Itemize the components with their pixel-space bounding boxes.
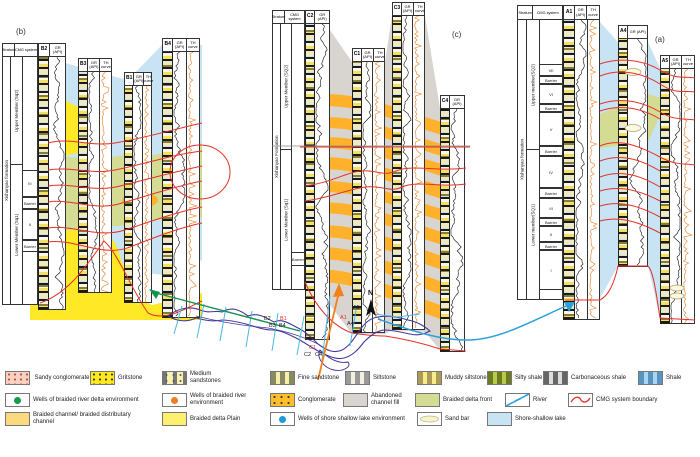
panel-c-tag: (c) <box>452 30 461 39</box>
legend-label: Braided delta front <box>443 397 492 404</box>
fine-sandstone-swatch <box>270 371 295 385</box>
well-A1-th-header: TH curve <box>587 6 599 19</box>
well-B3-gr-header: GR (API) <box>88 59 100 71</box>
well-B3-gr-curve <box>88 72 99 292</box>
legend-label: Abandoned channel fill <box>371 393 419 406</box>
panel-a-unit-VII: VII <box>539 64 563 76</box>
well-A1-gr-track <box>575 20 588 320</box>
legend-item-siltstone: Siltstone <box>345 371 396 385</box>
braided-delta-front-swatch <box>415 393 440 407</box>
map-label-C2: C2 <box>304 353 311 359</box>
panel-a-unit-barrier-4: Barrier <box>539 188 563 198</box>
well-B1-th-curve <box>143 86 151 302</box>
cmg-boundary-swatch <box>568 393 593 407</box>
well-A4-gr-curve <box>628 39 647 266</box>
well-C2-gr-curve <box>315 24 329 339</box>
well-B3-th-header: TH curve <box>100 59 111 71</box>
legend-item-wells-shore-shallow-lake: Wells of shore shallow lake environment <box>270 412 405 426</box>
well-B1-th-track <box>143 86 152 303</box>
map-label-B1: B1 <box>280 317 287 323</box>
well-B3-th-curve <box>100 72 111 292</box>
well-A5-th-track <box>682 69 695 324</box>
legend-label: Siltstone <box>373 375 396 382</box>
panel-a-unit-I: I <box>539 250 563 290</box>
panel-a-unit-III: III <box>539 198 563 218</box>
well-B4-th-curve <box>187 52 199 317</box>
legend-item-sandy-conglomerate: Sandy conglomerate <box>5 371 91 385</box>
well-C1-th-track <box>373 62 385 333</box>
panel-a-tag: (a) <box>655 35 665 44</box>
well-B3-gr-track <box>88 72 100 293</box>
map-label-A5: A5 <box>353 306 360 312</box>
panel-a-stratum-header: Stratum <box>518 6 533 19</box>
panel-c-stratum-header: Stratum <box>273 11 285 23</box>
well-A5-gr-curve <box>670 69 681 323</box>
legend-label: Muddy siltstone <box>445 375 487 382</box>
well-A5: A5 GR (API) TH curve <box>660 55 695 324</box>
legend-label: Wells of braided river environment <box>190 393 252 406</box>
panel-c-cmg-header: CMG system <box>285 11 304 23</box>
legend-item-fine-sandstone: Fine sandstone <box>270 371 344 385</box>
panel-b-formation-label: Xishanyao formation <box>3 57 10 304</box>
carbonaceous-shale-swatch <box>543 371 568 385</box>
legend-label: Conglomerate <box>298 397 336 404</box>
well-C3-gr-track <box>402 16 413 330</box>
legend-label: Fine sandstone <box>298 375 344 382</box>
muddy-siltstone-swatch <box>417 371 442 385</box>
legend-label: Wells of braided river delta environment <box>33 397 139 404</box>
well-C3-lithology-column <box>392 16 402 330</box>
panel-a-unit-V: V <box>539 112 563 146</box>
panel-b-tag: (b) <box>16 27 26 36</box>
legend-label: Medium sandstones <box>190 371 242 384</box>
map-label-C4: C4 <box>315 353 322 359</box>
siltstone-swatch <box>345 371 370 385</box>
well-C4-lithology-column <box>440 109 450 352</box>
panel-b-unit-barrier-1: Barrier <box>22 197 38 209</box>
map-label-C1: C1 <box>309 346 316 352</box>
map-label-B3: B3 <box>269 324 276 330</box>
legend-item-braided-channel: Braided channel/ braided distributary ch… <box>5 412 143 426</box>
panel-a-unit-IV: IV <box>539 156 563 188</box>
legend-item-river: River <box>505 393 547 407</box>
well-C3-th-header: TH curve <box>414 3 426 15</box>
panel-b-cmg-header: CMG system <box>15 44 37 56</box>
well-B2-name: B2 <box>39 44 50 56</box>
panel-a-cmg-header: CMG system <box>533 6 562 19</box>
legend-item-shale: Shale <box>638 371 681 385</box>
well-B4-name: B4 <box>163 39 173 51</box>
shore-shallow-lake-swatch <box>487 412 512 426</box>
panel-a-stratum-table: Stratum CMG system Xishanyao formation U… <box>517 5 563 300</box>
north-label: N <box>368 290 373 297</box>
well-B2-lithology-column <box>38 57 49 310</box>
well-B4-gr-track <box>173 52 187 318</box>
well-C1-lithology-column <box>352 62 362 333</box>
well-B2-gr-track <box>49 57 66 310</box>
panel-c-lower-member-label: Lower Member (Sq1) <box>281 150 291 290</box>
braided-river-well-icon <box>162 393 187 407</box>
well-C2: C2 GR (API) <box>305 10 330 340</box>
well-C4-gr-track <box>450 109 465 352</box>
well-B1-gr-track <box>133 86 143 303</box>
well-B2-gr-header: GR (API) <box>50 44 65 56</box>
well-C2-name: C2 <box>306 11 315 23</box>
legend-item-carbonaceous-shale: Carbonaceous shale <box>543 371 633 385</box>
well-C4-name: C4 <box>441 96 450 108</box>
well-A5-th-curve <box>682 69 694 323</box>
panel-b-stratum-header: Stratum <box>3 44 15 56</box>
legend-label: Shale <box>666 375 681 382</box>
panel-a-upper-member-label: Upper member(SQ2) <box>527 20 539 149</box>
legend-item-gritstone: Gritstone <box>90 371 142 385</box>
well-C3-name: C3 <box>393 3 402 15</box>
well-A4-lithology-column <box>618 39 628 267</box>
legend-item-braided-delta-plain: Braided delta Plain <box>162 412 240 426</box>
well-A4-gr-header: GR (API) <box>628 26 647 38</box>
legend-label: Carbonaceous shale <box>571 375 633 382</box>
well-C4-gr-curve <box>450 109 464 351</box>
legend-item-wells-braided-river: Wells of braided river environment <box>162 393 252 407</box>
panel-b-unit-II: II <box>22 209 38 240</box>
legend-item-cmg-system-boundary: CMG system boundary <box>568 393 657 407</box>
map-field-outline <box>168 308 430 359</box>
conglomerate-swatch <box>270 393 295 407</box>
medium-sandstones-swatch <box>162 371 187 385</box>
stratigraphic-correlation-figure: (b) Stratum CMG system Xishanyao formati… <box>0 0 700 457</box>
well-C1-gr-header: GR (API) <box>362 49 374 61</box>
panel-c-stratum-table: Stratum CMG system Xishanyao Formation U… <box>272 10 305 290</box>
well-C2-lithology-column <box>305 24 315 340</box>
well-B1-name: B1 <box>125 73 134 85</box>
panel-b-unit-III: III <box>22 170 38 197</box>
silty-shale-swatch <box>487 371 512 385</box>
well-C4-gr-header: GR (API) <box>450 96 464 108</box>
well-B1-gr-curve <box>133 86 142 302</box>
legend-item-sand-bar: Sand bar <box>417 412 469 426</box>
well-B4-gr-curve <box>173 52 186 317</box>
braided-channel-swatch <box>5 412 30 426</box>
well-C3-gr-curve <box>402 16 412 329</box>
well-A5-name: A5 <box>661 56 670 68</box>
legend-label: Wells of shore shallow lake environment <box>298 416 405 423</box>
panel-b-upper-member-label: Upper Member (Sq2) <box>11 57 22 164</box>
panel-c-upper-member-label: Upper Member (SQ2) <box>281 24 291 149</box>
panel-a-unit-barrier-6: Barrier <box>539 242 563 250</box>
legend-label: Sandy conglomerate <box>33 375 91 382</box>
well-C3-gr-header: GR (API) <box>402 3 414 15</box>
well-A1-th-curve <box>588 20 599 319</box>
panel-a-unit-barrier-2: Barrier <box>539 104 563 112</box>
gritstone-swatch <box>90 371 115 385</box>
legend-item-shore-shallow-lake: Shore-shallow lake <box>487 412 566 426</box>
panel-b-stratum-table: Stratum CMG system Xishanyao formation U… <box>2 43 38 305</box>
well-B4-th-header: TH curve <box>187 39 199 51</box>
legend-label: Shore-shallow lake <box>515 416 566 423</box>
well-B2: B2 GR (API) <box>38 43 66 310</box>
well-B4-th-track <box>187 52 200 318</box>
legend-item-braided-delta-front: Braided delta front <box>415 393 492 407</box>
well-A1-lithology-column <box>563 20 575 320</box>
well-A1-th-track <box>588 20 600 320</box>
legend-label: Braided delta Plain <box>190 416 240 423</box>
panel-a-unit-II: II <box>539 226 563 242</box>
legend-item-medium-sandstones: Medium sandstones <box>162 371 242 385</box>
panel-a-unit-VI: VI <box>539 84 563 104</box>
legend-item-silty-shale: Silty shale <box>487 371 545 385</box>
map-label-A1: A1 <box>340 316 347 322</box>
well-B3-th-track <box>100 72 112 293</box>
well-A4: A4 GR (API) <box>618 25 648 267</box>
map-label-B4: B4 <box>279 324 286 330</box>
well-B3-name: B3 <box>79 59 88 71</box>
panel-b-unit-barrier-2: Barrier <box>22 240 38 252</box>
well-A5-th-header: TH curve <box>682 56 694 68</box>
sand-bar-swatch <box>417 412 442 426</box>
river-swatch <box>505 393 530 407</box>
panel-a-unit-barrier-3: Barrier <box>539 146 563 156</box>
well-B4-gr-header: GR (API) <box>173 39 186 51</box>
legend-item-abandoned-channel-fill: Abandoned channel fill <box>343 393 419 407</box>
legend-label: CMG system boundary <box>596 397 657 404</box>
well-B2-gr-curve <box>49 57 65 309</box>
well-B4-lithology-column <box>162 52 173 318</box>
well-B3-lithology-column <box>78 72 88 293</box>
well-A4-gr-track <box>628 39 648 267</box>
legend-label: Sand bar <box>445 416 469 423</box>
well-C4: C4 GR (API) <box>440 95 465 352</box>
well-C3-th-track <box>413 16 425 330</box>
panel-c-formation-label: Xishanyao Formation <box>273 24 280 289</box>
panel-b-lower-member-label: Lower Member (Sq1) <box>11 165 22 305</box>
braided-delta-plain-swatch <box>162 412 187 426</box>
well-C2-gr-header: GR (API) <box>315 11 329 23</box>
well-B3: B3 GR (API) TH curve <box>78 58 112 293</box>
legend-label: River <box>533 397 547 404</box>
well-C1-name: C1 <box>353 49 362 61</box>
well-C3: C3 GR (API) TH curve <box>392 2 425 330</box>
well-B1-th-header: TH curve <box>144 73 152 85</box>
well-B1: B1 GR (API) TH curve <box>124 72 152 303</box>
panel-a-formation-label: Xishanyao formation <box>518 20 526 299</box>
well-C2-gr-track <box>315 24 330 340</box>
panel-a-lower-member-label: Lower member(SQ1) <box>527 150 539 300</box>
well-A5-gr-header: GR (API) <box>670 56 682 68</box>
well-A5-gr-track <box>670 69 682 324</box>
well-C3-th-curve <box>413 16 424 329</box>
well-A1-gr-header: GR (API) <box>575 6 587 19</box>
braided-river-delta-well-icon <box>5 393 30 407</box>
shale-swatch <box>638 371 663 385</box>
map-label-A4: A4 <box>347 322 354 328</box>
well-B1-lithology-column <box>124 86 133 303</box>
panel-a-unit-barrier-5: Barrier <box>539 218 563 226</box>
well-A1-name: A1 <box>564 6 575 19</box>
panel-c-unit-barrier: Barrier <box>291 252 305 266</box>
legend-label: Gritstone <box>118 375 142 382</box>
sandy-conglomerate-swatch <box>5 371 30 385</box>
shore-shallow-lake-well-icon <box>270 412 295 426</box>
legend-item-conglomerate: Conglomerate <box>270 393 336 407</box>
legend-label: Silty shale <box>515 375 545 382</box>
panel-a-unit-barrier-1: Barrier <box>539 76 563 84</box>
legend-label: Braided channel/ braided distributary ch… <box>33 412 143 425</box>
well-A4-name: A4 <box>619 26 628 38</box>
well-B4: B4 GR (API) TH curve <box>162 38 200 318</box>
well-C1-th-header: TH curve <box>374 49 386 61</box>
abandoned-channel-fill-swatch <box>343 393 368 407</box>
map-label-B2: B2 <box>264 317 271 323</box>
well-A5-lithology-column <box>660 69 670 324</box>
legend-item-wells-braided-river-delta: Wells of braided river delta environment <box>5 393 139 407</box>
well-A1-gr-curve <box>575 20 587 319</box>
well-A1: A1 GR (API) TH curve <box>563 5 600 320</box>
well-C1-th-curve <box>373 62 384 332</box>
legend-item-muddy-siltstone: Muddy siltstone <box>417 371 487 385</box>
